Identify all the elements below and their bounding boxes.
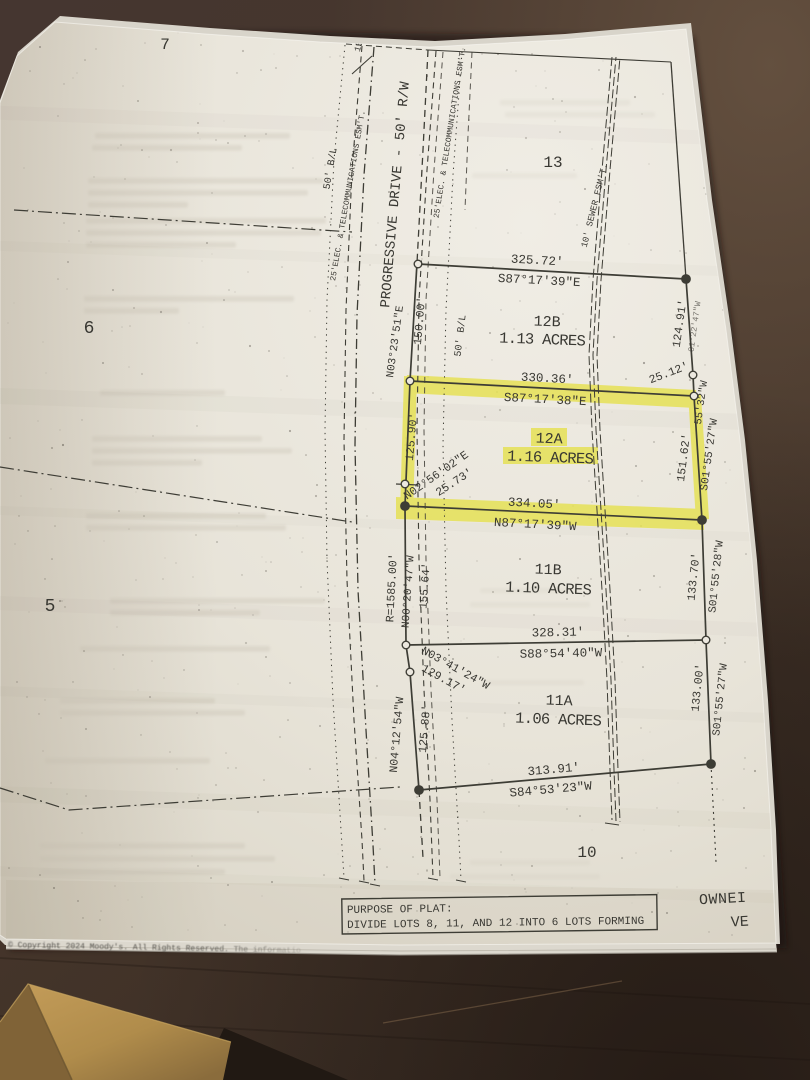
svg-text:6: 6: [84, 319, 95, 339]
svg-text:PURPOSE OF PLAT:: PURPOSE OF PLAT:: [347, 903, 453, 916]
svg-text:1.13 ACRES: 1.13 ACRES: [499, 330, 586, 351]
svg-text:13: 13: [543, 154, 562, 172]
svg-text:330.36': 330.36': [521, 371, 574, 388]
svg-text:1.10 ACRES: 1.10 ACRES: [505, 579, 592, 600]
svg-text:11A: 11A: [545, 693, 573, 711]
svg-text:11B: 11B: [534, 562, 562, 580]
svg-text:328.31': 328.31': [532, 626, 585, 641]
svg-text:VE: VE: [730, 914, 749, 932]
svg-text:12A: 12A: [535, 431, 563, 449]
svg-text:S88°54'40"W: S88°54'40"W: [520, 646, 603, 661]
svg-text:10: 10: [577, 844, 596, 862]
svg-text:12B: 12B: [533, 314, 561, 332]
svg-text:334.05': 334.05': [508, 496, 561, 513]
svg-text:7: 7: [160, 36, 170, 54]
svg-text:5: 5: [45, 597, 56, 617]
svg-text:1.06 ACRES: 1.06 ACRES: [515, 710, 602, 731]
svg-text:1.16 ACRES: 1.16 ACRES: [507, 448, 594, 469]
svg-text:OWNEI: OWNEI: [699, 890, 747, 909]
svg-text:325.72': 325.72': [511, 253, 564, 270]
